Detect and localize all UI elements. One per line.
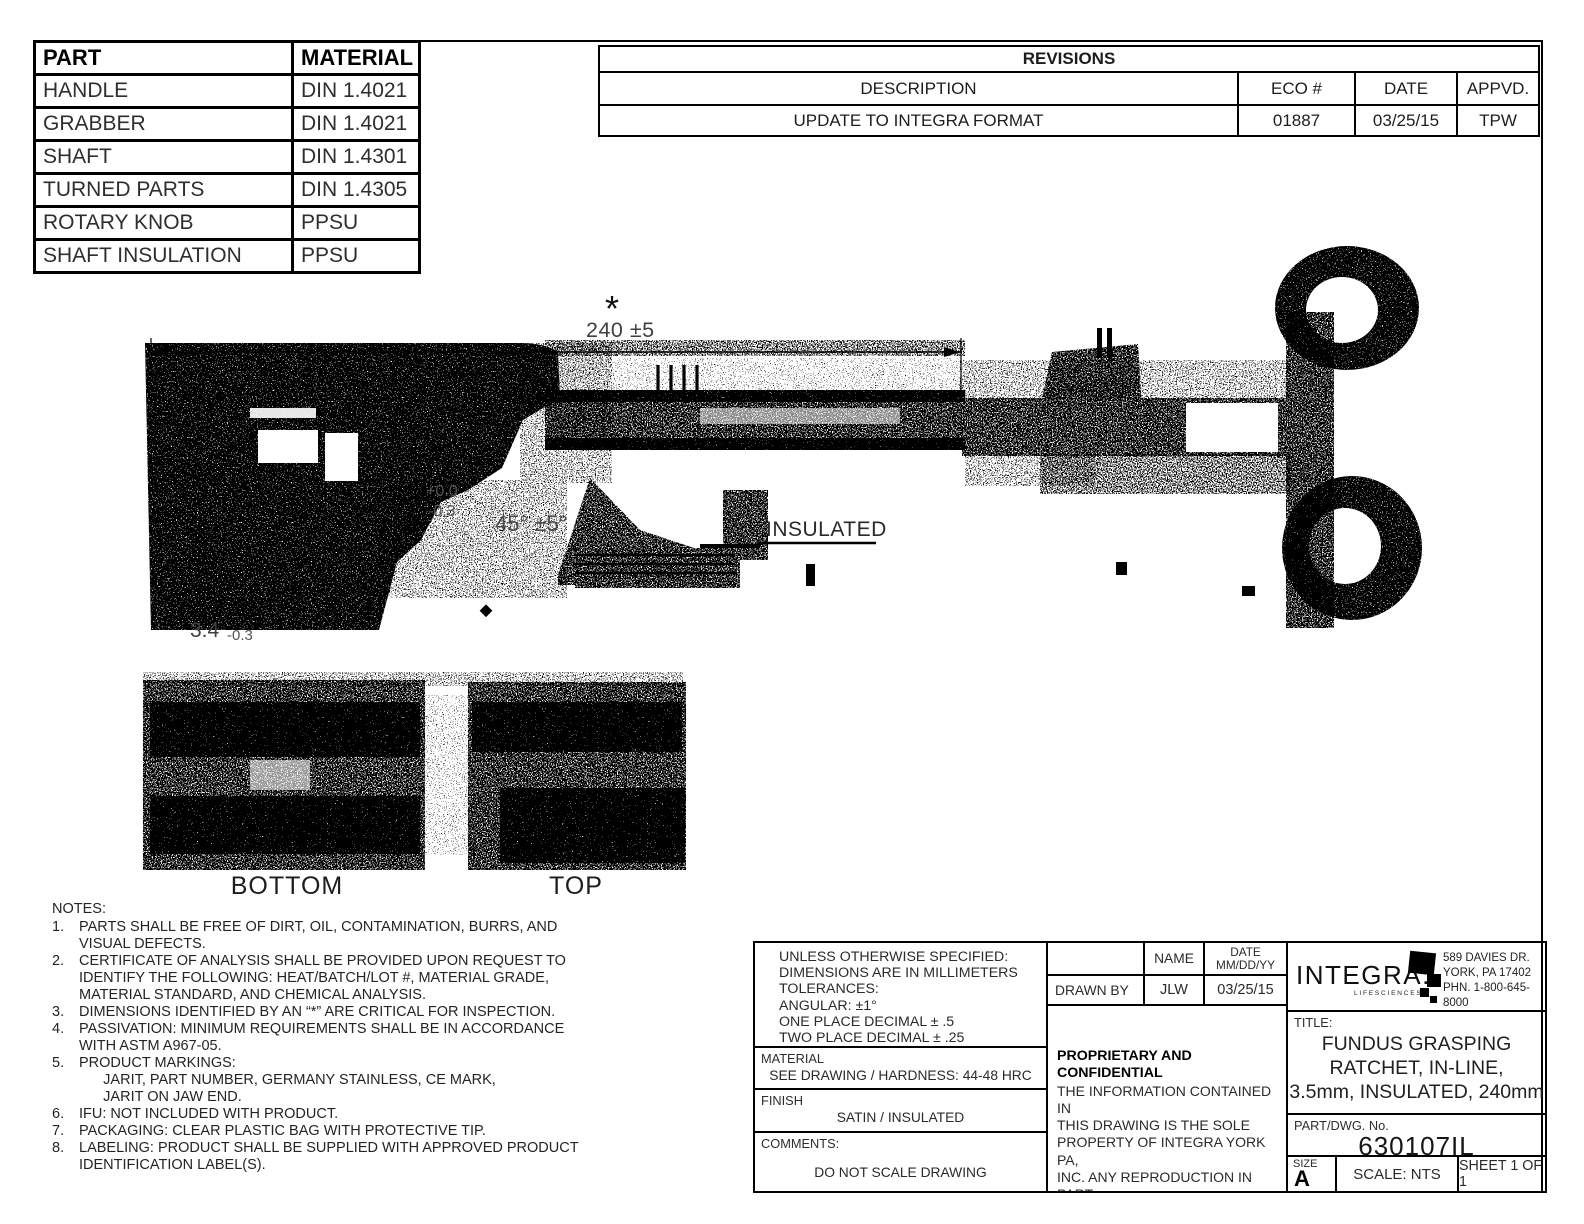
title-box: TITLE: FUNDUS GRASPING RATCHET, IN-LINE,… — [1288, 1012, 1545, 1115]
part-cell: ROTARY KNOB — [35, 207, 293, 240]
material-box: MATERIAL SEE DRAWING / HARDNESS: 44-48 H… — [755, 1048, 1048, 1090]
table-row: ROTARY KNOBPPSU — [35, 207, 420, 240]
scale-box: SCALE: NTS — [1337, 1157, 1459, 1191]
revision-description: UPDATE TO INTEGRA FORMAT — [599, 105, 1238, 136]
handle-assembly — [960, 246, 1422, 628]
table-row: GRABBERDIN 1.4021 — [35, 108, 420, 141]
notes-title: NOTES: — [52, 901, 712, 918]
note-number: 1. — [52, 919, 79, 953]
comments-box: COMMENTS: DO NOT SCALE DRAWING — [755, 1133, 1048, 1191]
date-header: DATE — [1355, 72, 1457, 105]
material-cell: DIN 1.4021 — [293, 108, 420, 141]
revision-appvd: TPW — [1457, 105, 1539, 136]
note-number: 3. — [52, 1004, 79, 1021]
notes-block: NOTES: 1.PARTS SHALL BE FREE OF DIRT, OI… — [52, 901, 712, 1174]
instrument-drawing: * 240 ±5 +0.0 -0.3 45° ±5° 3.4 -0.3 INSU… — [0, 240, 1584, 900]
note-item: 8.LABELING: PRODUCT SHALL BE SUPPLIED WI… — [52, 1140, 712, 1174]
revisions-header-row: DESCRIPTION ECO # DATE APPVD. — [599, 72, 1539, 105]
insulated-label: INSULATED — [766, 518, 887, 541]
note-text: PRODUCT MARKINGS: JARIT, PART NUMBER, GE… — [79, 1055, 496, 1106]
title-label: TITLE: — [1288, 1012, 1545, 1030]
integra-logo-tagline: LIFESCIENCES — [1354, 990, 1423, 997]
size-box: SIZE A — [1288, 1157, 1337, 1191]
part-cell: TURNED PARTS — [35, 174, 293, 207]
top-view-label: TOP — [549, 872, 603, 900]
jaw-tolerance-plus: +0.0 — [426, 483, 458, 500]
finish-label: FINISH — [755, 1090, 1046, 1108]
revisions-title: REVISIONS — [599, 46, 1539, 72]
note-number: 6. — [52, 1106, 79, 1123]
title-block: UNLESS OTHERWISE SPECIFIED: DIMENSIONS A… — [753, 941, 1547, 1193]
note-number: 4. — [52, 1021, 79, 1055]
part-cell: GRABBER — [35, 108, 293, 141]
table-row: HANDLEDIN 1.4021 — [35, 75, 420, 108]
revision-eco: 01887 — [1238, 105, 1355, 136]
note-text: PASSIVATION: MINIMUM REQUIREMENTS SHALL … — [79, 1021, 564, 1055]
finish-box: FINISH SATIN / INSULATED — [755, 1090, 1048, 1133]
date-column-header: DATE MM/DD/YY — [1205, 943, 1288, 976]
material-label: MATERIAL — [755, 1048, 1046, 1066]
note-item: 7.PACKAGING: CLEAR PLASTIC BAG WITH PROT… — [52, 1123, 712, 1140]
note-text: PACKAGING: CLEAR PLASTIC BAG WITH PROTEC… — [79, 1123, 486, 1140]
table-row: SHAFTDIN 1.4301 — [35, 141, 420, 174]
insulated-callout: INSULATED — [700, 490, 887, 560]
eco-header: ECO # — [1238, 72, 1355, 105]
note-item: 6.IFU: NOT INCLUDED WITH PRODUCT. — [52, 1106, 712, 1123]
part-number-box: PART/DWG. No. 630107IL — [1288, 1115, 1545, 1157]
part-cell: SHAFT — [35, 141, 293, 174]
revision-row: UPDATE TO INTEGRA FORMAT 01887 03/25/15 … — [599, 105, 1539, 136]
finger-ring-top — [1275, 246, 1419, 370]
company-box: INTEGRA. LIFESCIENCES 589 DAVIES DR. YOR… — [1288, 943, 1545, 1012]
comments-value: DO NOT SCALE DRAWING — [755, 1151, 1046, 1180]
note-item: 3.DIMENSIONS IDENTIFIED BY AN “*” ARE CR… — [52, 1004, 712, 1021]
bottom-view-label: BOTTOM — [231, 872, 343, 900]
logo-mark-icon — [1420, 988, 1429, 997]
material-cell: DIN 1.4021 — [293, 75, 420, 108]
drawn-by-label: DRAWN BY — [1048, 976, 1145, 1006]
overall-length-dimension: 240 ±5 — [586, 318, 655, 342]
note-text: CERTIFICATE OF ANALYSIS SHALL BE PROVIDE… — [79, 953, 566, 1004]
logo-mark-icon — [1430, 996, 1437, 1003]
note-text: IFU: NOT INCLUDED WITH PRODUCT. — [79, 1106, 338, 1123]
material-cell: DIN 1.4301 — [293, 141, 420, 174]
table-header-row: PART MATERIAL — [35, 42, 420, 75]
description-header: DESCRIPTION — [599, 72, 1238, 105]
revisions-table: REVISIONS DESCRIPTION ECO # DATE APPVD. … — [598, 45, 1540, 137]
note-number: 8. — [52, 1140, 79, 1174]
revisions-title-row: REVISIONS — [599, 46, 1539, 72]
note-number: 5. — [52, 1055, 79, 1106]
material-header: MATERIAL — [293, 42, 420, 75]
logo-mark-icon — [1427, 974, 1441, 987]
name-column-header: NAME — [1145, 943, 1205, 976]
name-date-spacer — [1048, 943, 1145, 976]
finish-value: SATIN / INSULATED — [755, 1108, 1046, 1125]
comments-label: COMMENTS: — [755, 1133, 1046, 1151]
part-cell: HANDLE — [35, 75, 293, 108]
sheet-box: SHEET 1 OF 1 — [1459, 1157, 1545, 1191]
table-row: TURNED PARTSDIN 1.4305 — [35, 174, 420, 207]
proprietary-text: THE INFORMATION CONTAINED IN THIS DRAWIN… — [1057, 1083, 1280, 1191]
note-item: 5.PRODUCT MARKINGS: JARIT, PART NUMBER, … — [52, 1055, 712, 1106]
material-cell: PPSU — [293, 207, 420, 240]
appvd-header: APPVD. — [1457, 72, 1539, 105]
note-text: DIMENSIONS IDENTIFIED BY AN “*” ARE CRIT… — [79, 1004, 555, 1021]
material-cell: DIN 1.4305 — [293, 174, 420, 207]
part-material-table: PART MATERIAL HANDLEDIN 1.4021 GRABBERDI… — [33, 40, 421, 274]
note-text: PARTS SHALL BE FREE OF DIRT, OIL, CONTAM… — [79, 919, 557, 953]
tip-width-dimension: 3.4 — [190, 619, 220, 642]
part-number-value: 630107IL — [1288, 1131, 1545, 1157]
jaw-top-view — [420, 682, 686, 870]
drawing-sheet: PART MATERIAL HANDLEDIN 1.4021 GRABBERDI… — [0, 0, 1584, 1224]
jaw-tolerance-minus: -0.3 — [428, 503, 456, 520]
tip-width-tolerance: -0.3 — [227, 627, 253, 644]
part-header: PART — [35, 42, 293, 75]
jaw-angle-dimension: 45° ±5° — [495, 511, 568, 536]
drawn-by-name: JLW — [1145, 976, 1205, 1006]
revision-date: 03/25/15 — [1355, 105, 1457, 136]
company-address: 589 DAVIES DR. YORK, PA 17402 PHN. 1-800… — [1443, 951, 1545, 1011]
drawing-title: FUNDUS GRASPING RATCHET, IN-LINE, 3.5mm,… — [1288, 1032, 1545, 1104]
proprietary-notice: PROPRIETARY AND CONFIDENTIAL THE INFORMA… — [1048, 1006, 1288, 1191]
note-text: LABELING: PRODUCT SHALL BE SUPPLIED WITH… — [79, 1140, 579, 1174]
finger-ring-bottom — [1282, 476, 1422, 620]
material-value: SEE DRAWING / HARDNESS: 44-48 HRC — [755, 1066, 1046, 1083]
note-number: 2. — [52, 953, 79, 1004]
note-item: 2.CERTIFICATE OF ANALYSIS SHALL BE PROVI… — [52, 953, 712, 1004]
drawn-by-date: 03/25/15 — [1205, 976, 1288, 1006]
tolerance-note: UNLESS OTHERWISE SPECIFIED: DIMENSIONS A… — [755, 943, 1048, 1048]
logo-mark-icon — [1408, 951, 1436, 976]
jaw-detail-view — [145, 343, 612, 630]
note-item: 4.PASSIVATION: MINIMUM REQUIREMENTS SHAL… — [52, 1021, 712, 1055]
note-number: 7. — [52, 1123, 79, 1140]
proprietary-title: PROPRIETARY AND CONFIDENTIAL — [1057, 1048, 1280, 1083]
note-item: 1.PARTS SHALL BE FREE OF DIRT, OIL, CONT… — [52, 919, 712, 953]
